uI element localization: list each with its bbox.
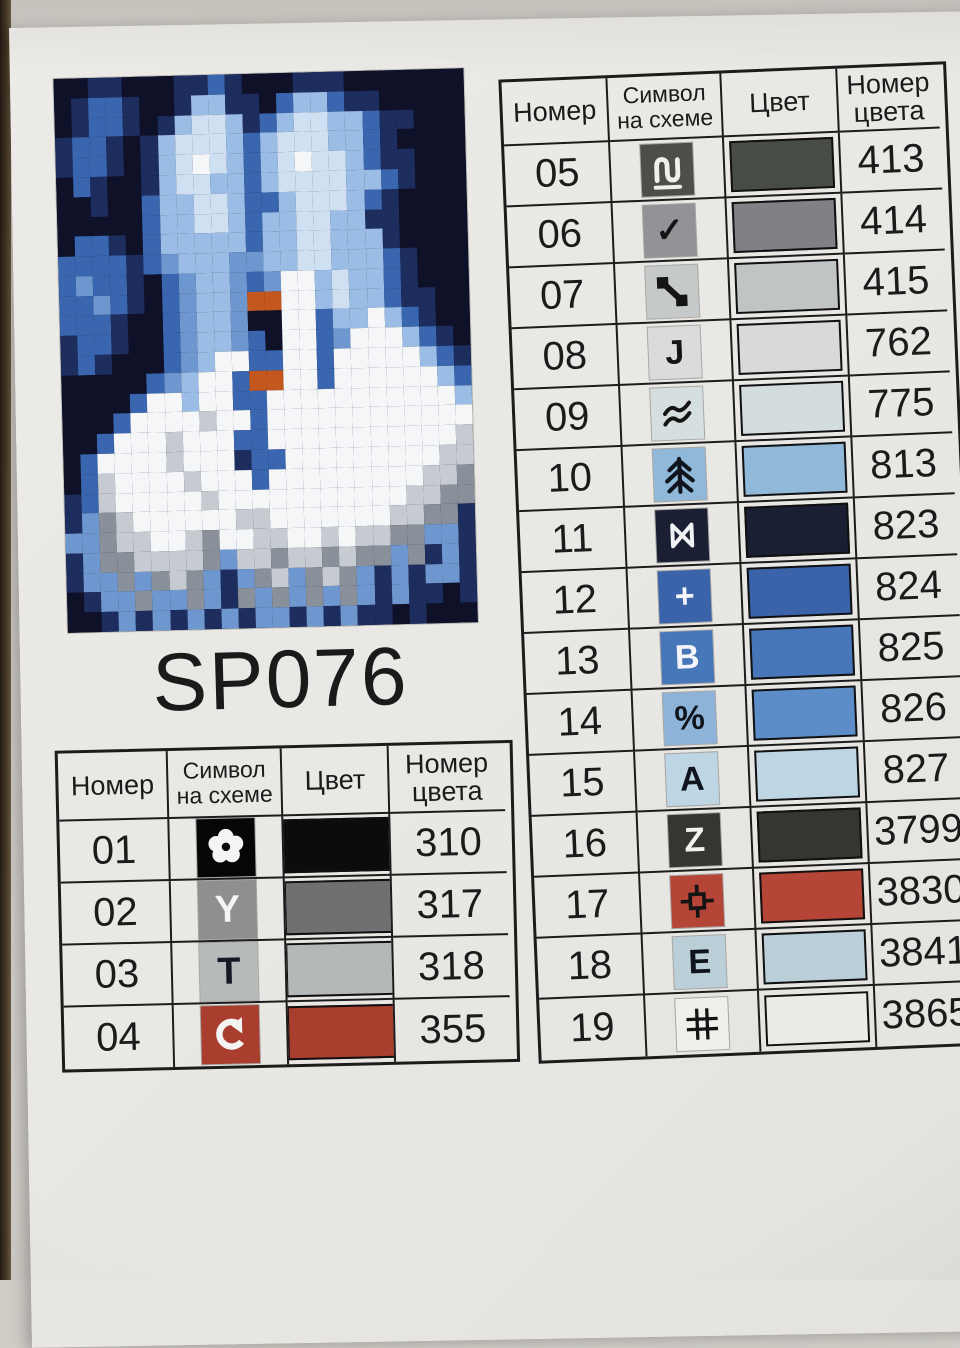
symbol-cell — [620, 381, 736, 447]
color-swatch — [737, 320, 843, 375]
color-number: 3841 — [872, 921, 960, 986]
color-number: 310 — [390, 811, 506, 876]
symbol-cell: + — [628, 564, 744, 630]
color-swatch — [752, 685, 858, 740]
letter-b-symbol: B — [660, 630, 714, 684]
color-number: 355 — [395, 997, 511, 1062]
color-swatch — [286, 941, 394, 998]
row-number: 03 — [62, 943, 173, 1008]
color-number: 762 — [847, 311, 949, 376]
color-swatch — [732, 198, 838, 253]
color-number: 317 — [392, 873, 508, 938]
color-swatch — [734, 259, 840, 314]
percent-symbol: % — [663, 691, 717, 745]
color-number: 813 — [852, 433, 954, 498]
row-number: 09 — [514, 386, 622, 451]
plus-symbol: + — [658, 569, 712, 623]
symbol-cell: T — [172, 940, 287, 1005]
color-number: 825 — [860, 616, 960, 681]
row-number: 19 — [539, 995, 647, 1060]
row-number: 10 — [517, 447, 625, 512]
color-swatch — [744, 503, 850, 558]
header-number: Номер — [58, 751, 170, 822]
row-number: 14 — [527, 691, 635, 756]
flower-icon — [196, 818, 255, 877]
symbol-cell — [645, 991, 761, 1057]
color-swatch — [739, 381, 845, 436]
color-cell — [759, 986, 877, 1052]
pattern-page: SP076 НомерСимволна схемеЦветНомерцвета0… — [9, 11, 960, 1348]
row-number: 11 — [519, 508, 627, 573]
header-color-number: Номерцвета — [389, 743, 506, 814]
symbol-cell: ✓ — [613, 198, 729, 264]
symbol-cell: % — [633, 686, 749, 752]
color-swatch — [729, 137, 835, 192]
checkmark-icon: ✓ — [643, 203, 697, 257]
color-cell — [739, 498, 857, 564]
color-number: 823 — [855, 494, 957, 559]
color-cell — [726, 194, 844, 260]
letter-j-symbol: J — [648, 325, 702, 379]
color-cell — [285, 876, 393, 941]
pattern-preview-image — [53, 68, 477, 633]
color-cell — [744, 620, 862, 686]
symbol-cell — [623, 442, 739, 508]
color-cell — [731, 315, 849, 381]
row-number: 07 — [509, 264, 617, 329]
color-number: 318 — [393, 935, 509, 1000]
symbol-cell: A — [635, 747, 751, 813]
color-cell — [746, 681, 864, 747]
header-color: Цвет — [721, 69, 840, 138]
letter-z-symbol: Z — [668, 813, 722, 867]
header-number: Номер — [501, 78, 610, 146]
color-number: 3799 — [867, 799, 960, 864]
symbol-cell — [169, 816, 284, 881]
color-cell — [751, 803, 869, 869]
row-number: 13 — [524, 630, 632, 695]
color-cell — [756, 925, 874, 991]
color-cell — [734, 376, 852, 442]
wave-n-icon — [640, 142, 694, 196]
color-cell — [729, 255, 847, 321]
symbol-cell: Y — [171, 878, 286, 943]
letter-y-symbol: Y — [198, 880, 257, 939]
symbol-cell: E — [643, 930, 759, 996]
symbol-cell — [615, 259, 731, 325]
color-number: 3830 — [870, 860, 960, 925]
row-number: 18 — [537, 934, 645, 999]
color-swatch — [754, 746, 860, 801]
bowtie-icon — [655, 508, 709, 562]
row-number: 02 — [61, 881, 172, 946]
color-number: 3865 — [875, 982, 960, 1047]
color-swatch — [764, 991, 870, 1046]
color-cell — [286, 938, 394, 1003]
loop-arrow-icon — [201, 1005, 260, 1064]
header-color: Цвет — [282, 746, 391, 817]
color-cell — [283, 814, 391, 879]
cross-stitch-pixel-grid — [53, 68, 477, 633]
color-number: 824 — [857, 555, 959, 620]
pattern-code-title: SP076 — [69, 628, 491, 734]
row-number: 15 — [529, 752, 637, 817]
letter-t-symbol: T — [199, 942, 258, 1001]
right-color-table: НомерСимволна схемеЦветНомерцвета05 4130… — [498, 61, 960, 1064]
color-number: 413 — [840, 129, 942, 194]
header-symbol: Символна схеме — [607, 73, 724, 142]
symbol-cell — [625, 503, 741, 569]
color-cell — [749, 742, 867, 808]
color-swatch — [283, 817, 391, 874]
color-swatch — [742, 442, 848, 497]
color-number: 826 — [862, 677, 960, 742]
symbol-cell — [610, 137, 726, 203]
header-color-number: Номерцвета — [837, 65, 940, 133]
symbol-cell — [174, 1002, 289, 1067]
color-number: 414 — [842, 189, 944, 254]
color-swatch — [762, 929, 868, 984]
color-cell — [754, 864, 872, 930]
symbol-cell: J — [618, 320, 734, 386]
color-swatch — [757, 807, 863, 862]
row-number: 17 — [534, 873, 642, 938]
row-number: 01 — [59, 819, 170, 884]
row-number: 06 — [507, 203, 615, 268]
symbol-cell: Z — [638, 808, 754, 874]
header-symbol: Символна схеме — [168, 748, 284, 819]
color-swatch — [749, 625, 855, 680]
row-number: 12 — [522, 569, 630, 634]
row-number: 05 — [504, 142, 612, 207]
row-number: 04 — [64, 1005, 175, 1070]
color-cell — [288, 1000, 396, 1065]
color-cell — [724, 133, 842, 199]
double-wave-icon — [650, 386, 704, 440]
letter-a-symbol: A — [665, 752, 719, 806]
row-number: 16 — [532, 813, 640, 878]
left-color-table: НомерСимволна схемеЦветНомерцвета01 3100… — [55, 740, 520, 1073]
color-swatch — [285, 879, 393, 936]
letter-e-symbol: E — [673, 935, 727, 989]
color-number: 827 — [865, 738, 960, 803]
link-diagonal-icon — [645, 264, 699, 318]
color-swatch — [747, 564, 853, 619]
hash-grid-icon — [675, 996, 729, 1050]
color-swatch — [288, 1004, 396, 1061]
color-cell — [736, 437, 854, 503]
color-swatch — [759, 868, 865, 923]
fir-tree-icon — [653, 447, 707, 501]
color-number: 415 — [845, 250, 947, 315]
target-box-icon — [670, 874, 724, 928]
photo-background-edge — [0, 0, 11, 1280]
symbol-cell — [640, 869, 756, 935]
color-number: 775 — [850, 372, 952, 437]
color-cell — [741, 559, 859, 625]
row-number: 08 — [512, 325, 620, 390]
symbol-cell: B — [630, 625, 746, 691]
